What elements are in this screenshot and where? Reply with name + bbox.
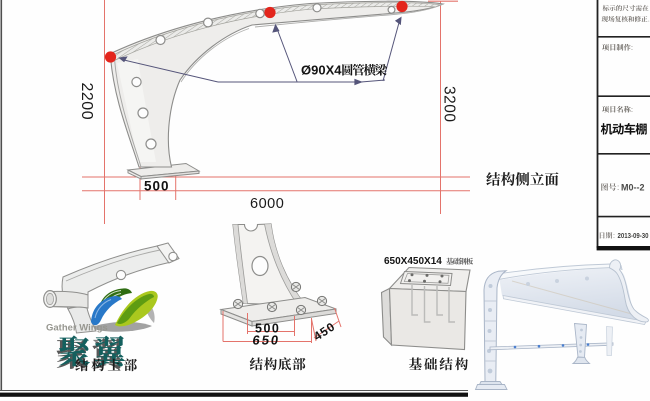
svg-text:Ø90X4: Ø90X4 <box>301 63 342 78</box>
svg-text:2013-09-30: 2013-09-30 <box>618 233 649 240</box>
svg-text::: : <box>617 183 619 192</box>
svg-text:650: 650 <box>252 333 282 348</box>
svg-text:6000: 6000 <box>250 196 284 212</box>
svg-text:500: 500 <box>144 179 170 194</box>
svg-text:3200: 3200 <box>441 86 458 122</box>
svg-text::: : <box>631 107 633 114</box>
svg-text::: : <box>613 233 615 240</box>
svg-text:M0--2: M0--2 <box>621 183 645 193</box>
svg-text:Gather Wings: Gather Wings <box>46 323 108 334</box>
svg-text:650X450X14: 650X450X14 <box>384 256 442 267</box>
svg-text:2200: 2200 <box>78 83 95 121</box>
svg-text::: : <box>631 45 633 52</box>
